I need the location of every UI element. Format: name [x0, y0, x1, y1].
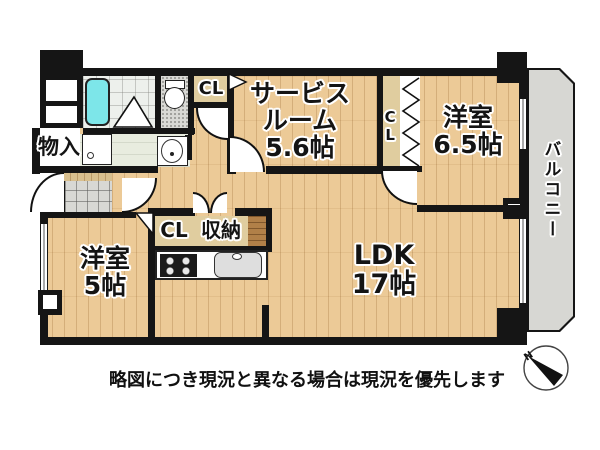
toilet-bowl-icon — [164, 87, 185, 109]
washing-machine-pan-icon — [82, 134, 112, 165]
pillar-bottom-right — [497, 308, 527, 345]
ldk-size: 17帖 — [328, 270, 440, 299]
closet-top-label: CL — [193, 79, 229, 98]
monoire-label: 物入 — [32, 136, 86, 159]
pillar-notch — [46, 80, 77, 101]
wall-storage-right — [266, 208, 272, 252]
wall-right-3 — [519, 303, 527, 313]
service-room-name-1: サービス — [230, 80, 370, 107]
closet-hall-label: CL — [154, 220, 194, 242]
window-ldk — [519, 219, 527, 303]
balcony-label: バルコニー — [541, 140, 559, 240]
bedroom65-label: 洋室 6.5帖 — [413, 104, 523, 158]
wall-bath-toilet — [155, 76, 161, 132]
washbasin-dot-icon — [170, 152, 174, 156]
drain-icon — [87, 152, 94, 159]
ldk-name: LDK — [328, 241, 440, 270]
wall-bedroom65-bottom — [417, 205, 520, 212]
compass-north-label: N — [522, 350, 535, 364]
storage-shelf — [248, 216, 266, 247]
wall-kitchen-stub — [262, 305, 269, 338]
service-room-label: サービス ルーム 5.6帖 — [230, 80, 370, 161]
storage-label: 収納 — [194, 220, 248, 242]
floorplan-canvas: バルコニー — [0, 0, 600, 450]
bedroom5-label: 洋室 5帖 — [50, 245, 160, 299]
window-bedroom5 — [40, 224, 48, 290]
wall-right-1 — [519, 83, 527, 99]
pillar-top-right — [497, 52, 527, 83]
disclaimer-caption: 略図につき現況と異なる場合は現況を優先します — [62, 366, 552, 392]
washbasin-bowl-icon — [161, 139, 183, 163]
stove-icon — [160, 254, 197, 277]
bedroom65-name: 洋室 — [413, 104, 523, 131]
bedroom5-name: 洋室 — [50, 245, 160, 272]
bedroom5-size: 5帖 — [50, 272, 160, 299]
pillar-notch — [46, 106, 77, 123]
service-room-size: 5.6帖 — [230, 134, 370, 161]
service-room-name-2: ルーム — [230, 107, 370, 134]
bathtub-icon — [85, 78, 110, 126]
faucet-icon — [232, 253, 242, 260]
wall-bottom — [40, 337, 497, 345]
closet-side-label: CL — [382, 108, 398, 144]
wall-top — [83, 68, 497, 76]
bedroom65-size: 6.5帖 — [413, 131, 523, 158]
entry-step — [63, 173, 112, 181]
wall-service-bottom-b — [266, 166, 383, 174]
genkan-tiles — [63, 181, 112, 213]
ldk-label: LDK 17帖 — [328, 241, 440, 299]
wall-hall-closet-a — [148, 208, 195, 216]
